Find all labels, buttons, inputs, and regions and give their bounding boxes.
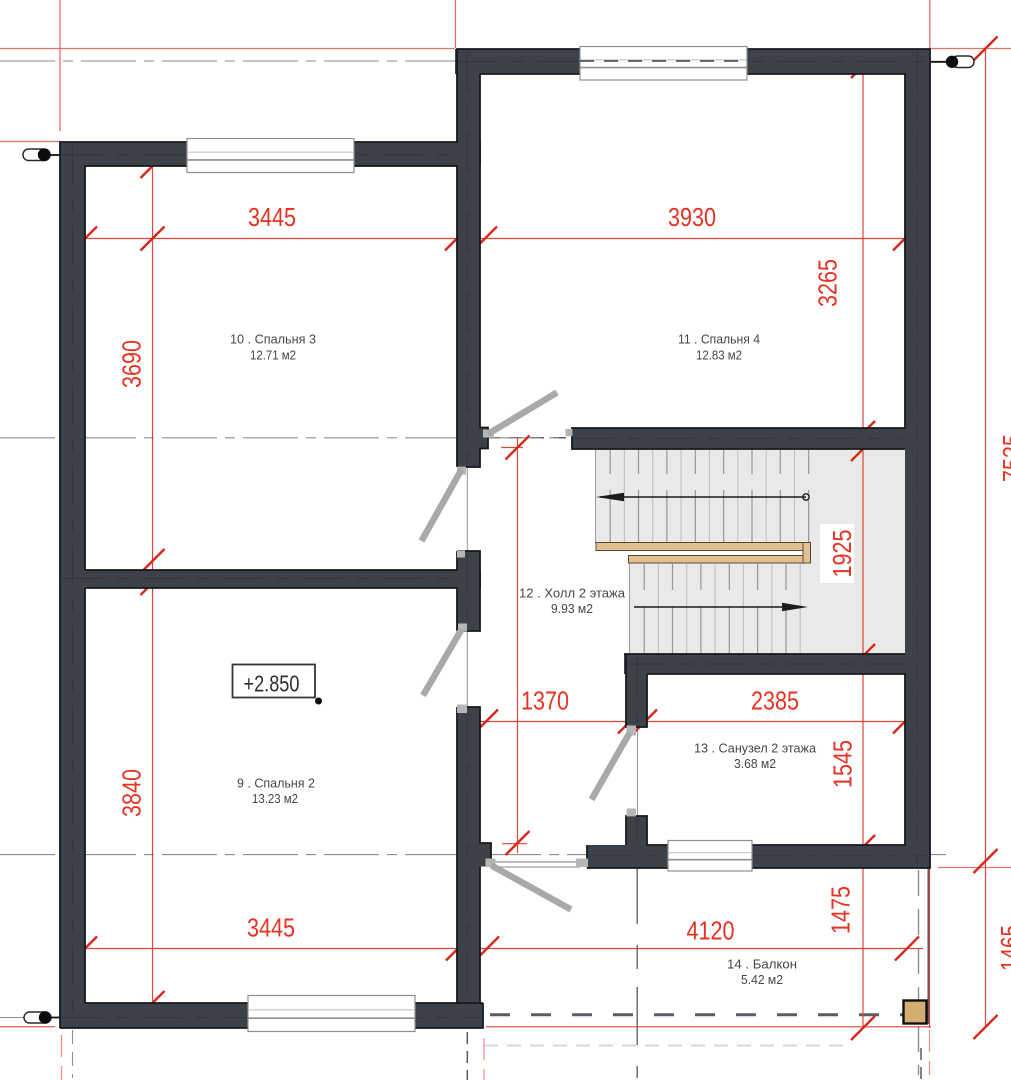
svg-text:1370: 1370 (521, 688, 569, 716)
svg-text:13 . Санузел 2 этажа: 13 . Санузел 2 этажа (694, 742, 816, 756)
svg-text:4120: 4120 (687, 918, 735, 946)
svg-text:9 . Спальня 2: 9 . Спальня 2 (237, 777, 315, 791)
svg-text:3930: 3930 (668, 204, 716, 232)
svg-text:7535: 7535 (999, 434, 1011, 482)
svg-text:+2.850: +2.850 (244, 671, 300, 697)
svg-text:3.68 м2: 3.68 м2 (734, 757, 776, 771)
svg-text:11 . Спальня 4: 11 . Спальня 4 (678, 333, 760, 347)
svg-text:1465: 1465 (997, 925, 1011, 971)
svg-text:12.83 м2: 12.83 м2 (696, 349, 742, 363)
svg-text:1475: 1475 (828, 886, 856, 934)
svg-text:14 . Балкон: 14 . Балкон (727, 958, 797, 972)
svg-text:2385: 2385 (751, 688, 799, 716)
svg-text:1925: 1925 (829, 530, 857, 578)
svg-text:1545: 1545 (830, 740, 858, 788)
svg-text:9.93 м2: 9.93 м2 (551, 602, 593, 616)
svg-text:5.42 м2: 5.42 м2 (741, 973, 783, 987)
svg-text:13.23 м2: 13.23 м2 (252, 792, 298, 806)
svg-text:12.71 м2: 12.71 м2 (250, 349, 296, 363)
svg-text:3265: 3265 (815, 259, 843, 307)
svg-text:3445: 3445 (248, 204, 296, 232)
svg-text:3445: 3445 (247, 915, 295, 943)
svg-text:3690: 3690 (119, 340, 147, 388)
svg-text:12 . Холл 2 этажа: 12 . Холл 2 этажа (519, 587, 625, 601)
svg-text:10 . Спальня 3: 10 . Спальня 3 (230, 333, 316, 347)
svg-text:3840: 3840 (119, 769, 147, 817)
